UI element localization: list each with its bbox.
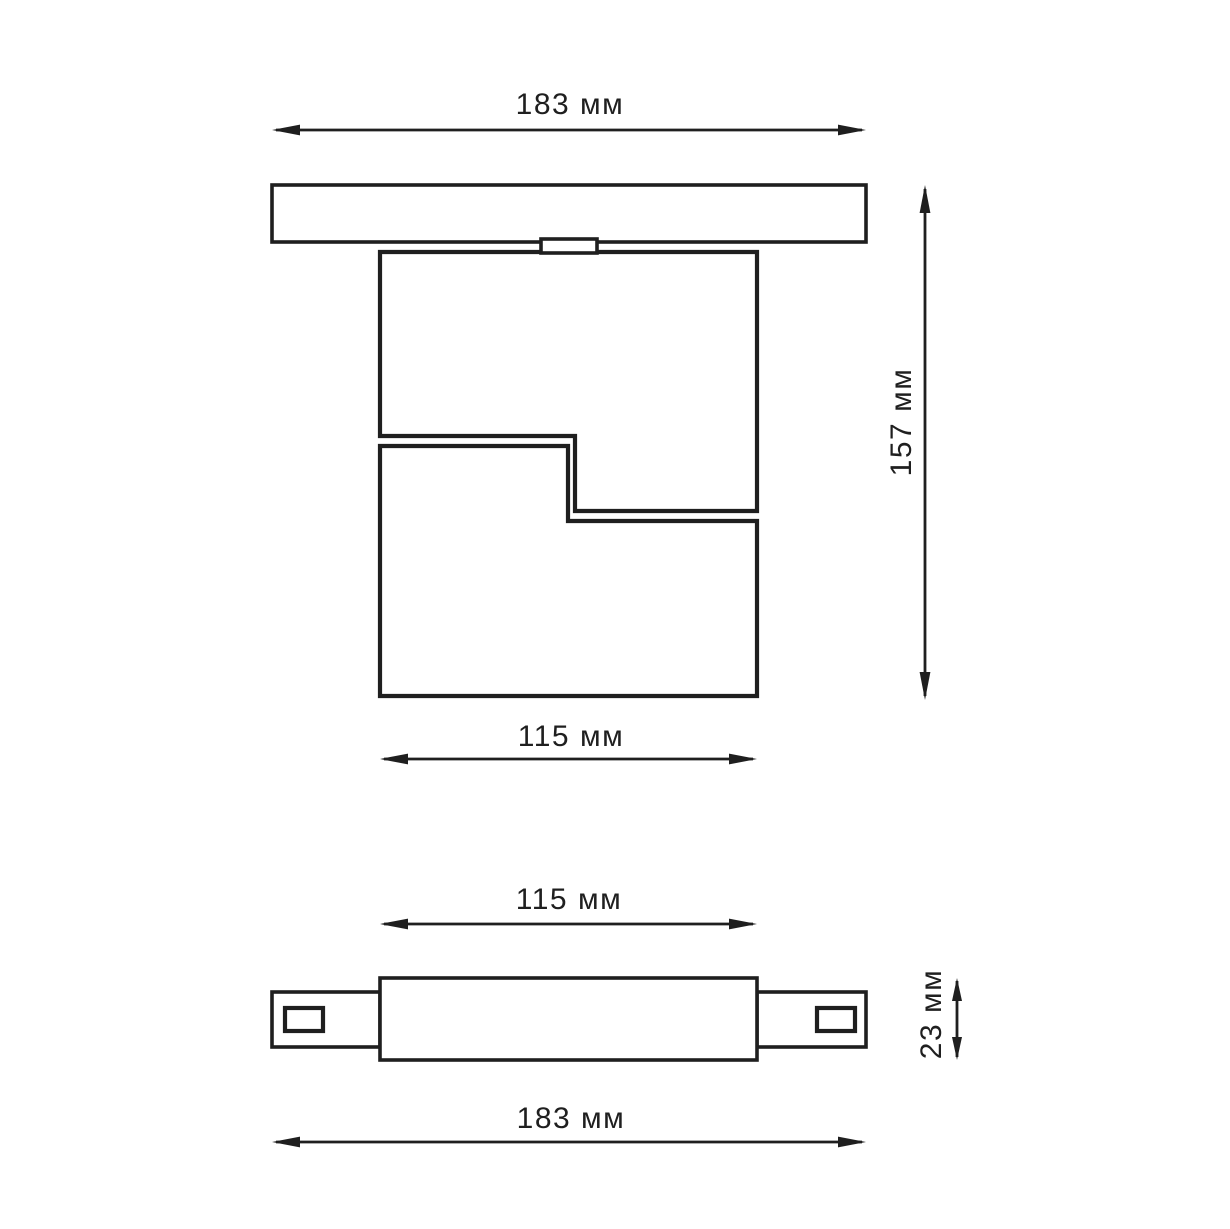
front-track-width-arrowhead-left-icon (272, 125, 300, 136)
side-body-outline (380, 978, 757, 1060)
front-height-arrowhead-top-icon (920, 185, 931, 213)
front-body-width-arrowhead-right-icon (729, 754, 757, 765)
side-body-width-label: 115 мм (516, 883, 622, 916)
front-track-width-label: 183 мм (516, 88, 625, 121)
drawing-svg: 183 мм 115 мм 157 мм 115 мм (0, 0, 1230, 1229)
side-height-label: 23 мм (915, 969, 948, 1059)
front-body-width-arrowhead-left-icon (380, 754, 408, 765)
right-tab-slot-outline (817, 1008, 855, 1031)
front-height-arrowhead-bottom-icon (920, 672, 931, 700)
side-body-width-arrowhead-right-icon (729, 919, 757, 930)
side-height-arrowhead-top-icon (952, 978, 962, 1001)
track-bar-outline (272, 185, 866, 242)
side-track-width-label: 183 мм (517, 1102, 626, 1135)
side-track-width-arrowhead-left-icon (272, 1137, 300, 1148)
front-height-label: 157 мм (885, 368, 918, 477)
side-body-width-arrowhead-left-icon (380, 919, 408, 930)
side-height-arrowhead-bottom-icon (952, 1037, 962, 1060)
left-tab-slot-outline (285, 1008, 323, 1031)
front-body-width-label: 115 мм (518, 720, 624, 753)
track-adapter-outline (541, 239, 597, 253)
side-track-width-arrowhead-right-icon (838, 1137, 866, 1148)
technical-drawing-page: 183 мм 115 мм 157 мм 115 мм (0, 0, 1230, 1229)
front-track-width-arrowhead-right-icon (838, 125, 866, 136)
